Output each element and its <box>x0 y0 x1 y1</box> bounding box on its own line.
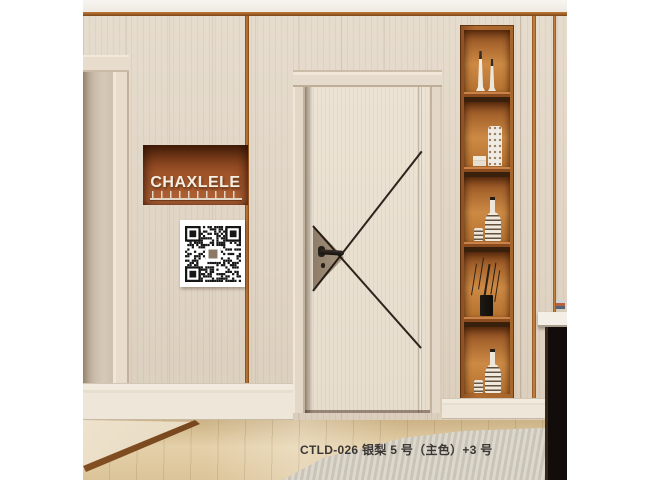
perforated-vase-decor <box>488 126 502 166</box>
striped-bottle-decor <box>485 349 501 393</box>
qr-code-icon <box>185 226 241 282</box>
brand-sign-posts <box>152 191 240 198</box>
door-frame-right <box>430 87 442 413</box>
door-bottom-shadow <box>305 410 430 413</box>
niche-compartment <box>464 177 510 242</box>
book-stack-decor <box>473 156 486 166</box>
small-cup-decor <box>474 380 483 393</box>
display-niche-interior <box>464 30 510 395</box>
console-table-body <box>545 327 567 480</box>
brand-sign-rail <box>150 198 242 200</box>
door-diagonal-groove-up <box>312 151 422 292</box>
table-vase-decor <box>556 300 565 312</box>
wooden-shelf <box>464 92 510 102</box>
wooden-shelf <box>464 242 510 252</box>
wooden-shelf <box>464 317 510 327</box>
wooden-shelf <box>464 167 510 177</box>
product-photo: CHAXLELE <box>83 0 567 480</box>
copper-wall-strip <box>532 16 536 402</box>
niche-compartment <box>464 30 510 92</box>
ceiling <box>83 0 567 12</box>
left-door-frame-stile <box>111 72 129 412</box>
wall-groove <box>520 16 521 402</box>
striped-bottle-decor <box>485 197 501 241</box>
screenshot-canvas: CHAXLELE <box>0 0 650 480</box>
baseboard <box>83 383 293 420</box>
niche-compartment <box>464 252 510 317</box>
door-frame-header <box>293 70 442 87</box>
door-vertical-groove <box>418 87 422 413</box>
display-niche <box>460 25 514 400</box>
small-cup-decor <box>474 228 483 241</box>
brand-sign: CHAXLELE <box>143 145 248 205</box>
left-doorway-recess <box>83 55 113 412</box>
qr-code <box>180 220 245 287</box>
console-table-top <box>538 312 567 327</box>
door-diagonal-groove-down <box>312 225 422 348</box>
main-door <box>293 70 442 413</box>
branch-vase-decor <box>467 256 507 316</box>
product-caption: CTLD-026 银梨 5 号（主色）+3 号 <box>300 441 493 458</box>
door-leaf <box>305 87 430 413</box>
niche-compartment <box>464 102 510 167</box>
brand-sign-label: CHAXLELE <box>143 174 248 192</box>
left-door-frame-header <box>83 55 129 72</box>
niche-compartment <box>464 327 510 394</box>
copper-ceiling-trim <box>83 12 567 16</box>
door-keyhole <box>321 263 325 268</box>
door-frame-left <box>293 87 305 413</box>
door-hinge-shadow <box>305 87 313 413</box>
candlestick-pair-decor <box>475 45 499 91</box>
